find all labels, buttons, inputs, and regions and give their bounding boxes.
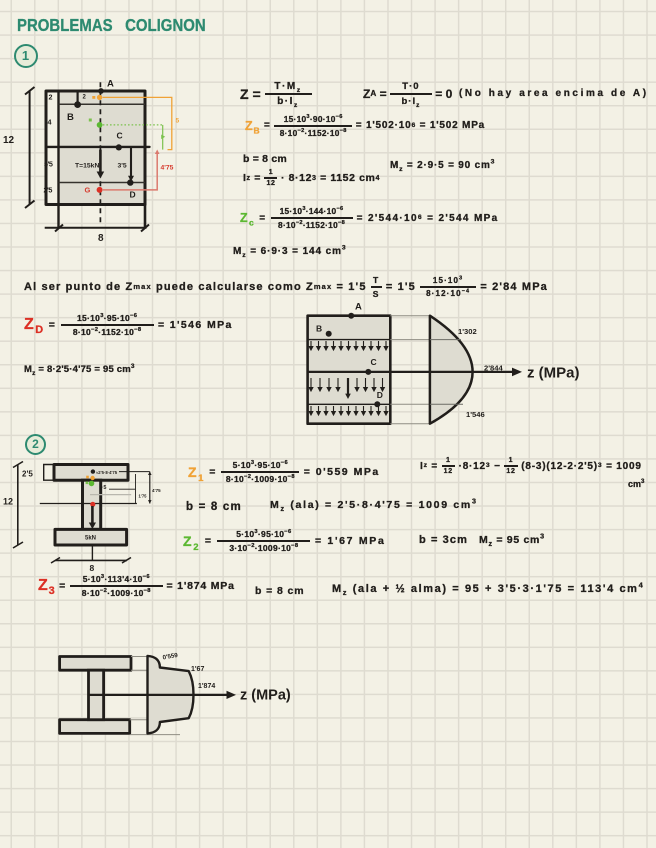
svg-text:D: D <box>130 190 136 200</box>
svg-text:0'559: 0'559 <box>162 652 179 662</box>
svg-text:B: B <box>67 112 74 123</box>
svg-text:5: 5 <box>176 118 180 125</box>
svg-text:1'67: 1'67 <box>191 666 204 673</box>
svg-text:2'5: 2'5 <box>44 186 53 195</box>
svg-text:12: 12 <box>3 135 15 146</box>
svg-text:12: 12 <box>3 497 13 507</box>
svg-text:D: D <box>377 390 383 400</box>
svg-text:4'75: 4'75 <box>152 488 161 493</box>
svg-text:1'75: 1'75 <box>139 494 148 499</box>
svg-text:z (MPa): z (MPa) <box>527 365 580 382</box>
svg-text:A: A <box>355 302 362 313</box>
svg-text:1'874: 1'874 <box>198 683 215 690</box>
svg-text:·5: ·5 <box>102 485 107 491</box>
svg-text:4: 4 <box>48 118 52 127</box>
svg-text:3'5: 3'5 <box>118 163 127 170</box>
svg-text:z (MPa): z (MPa) <box>240 688 291 704</box>
svg-text:2'5: 2'5 <box>22 470 33 479</box>
svg-text:G: G <box>85 186 91 195</box>
svg-text:5'5: 5'5 <box>44 160 53 169</box>
svg-text:8: 8 <box>98 233 104 244</box>
svg-text:8: 8 <box>90 563 95 573</box>
svg-text:B: B <box>316 324 322 334</box>
svg-text:C: C <box>371 357 377 367</box>
svg-text:T=15kN: T=15kN <box>75 163 99 170</box>
svg-text:2: 2 <box>49 93 53 102</box>
svg-text:≈2'5·8·4'75: ≈2'5·8·4'75 <box>96 470 118 475</box>
svg-text:4'75: 4'75 <box>161 165 174 172</box>
svg-text:1'302: 1'302 <box>458 327 477 336</box>
svg-text:C: C <box>117 131 123 141</box>
svg-text:A: A <box>107 79 114 90</box>
svg-text:2'844: 2'844 <box>484 364 503 373</box>
svg-text:1'546: 1'546 <box>466 410 485 419</box>
svg-text:5kN: 5kN <box>85 536 96 542</box>
